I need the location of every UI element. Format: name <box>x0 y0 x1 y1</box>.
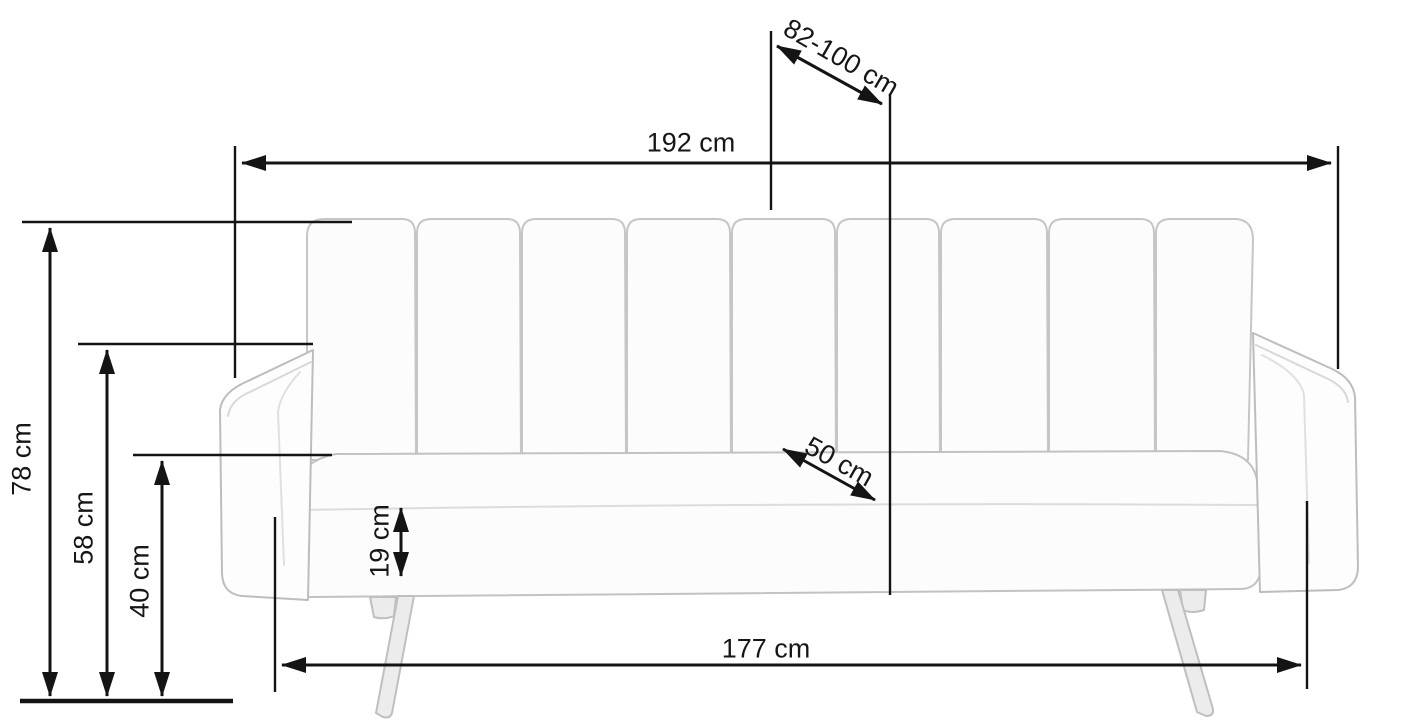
back-panel <box>627 219 731 460</box>
sofa-dimension-diagram: 192 cm 82-100 cm 78 cm 58 cm 40 cm 19 cm… <box>0 0 1408 723</box>
arm-height-label: 58 cm <box>71 491 98 565</box>
left-leg-bracket <box>370 597 396 618</box>
diagram-canvas <box>0 0 1408 723</box>
back-panel <box>1049 219 1155 460</box>
sofa-left-arm <box>220 350 313 600</box>
base-width-label: 177 cm <box>722 636 811 663</box>
back-panel <box>307 219 416 460</box>
sofa-backrest <box>307 219 1253 460</box>
back-panel <box>522 219 626 460</box>
overall-height-label: 78 cm <box>9 422 36 496</box>
back-panel <box>941 219 1048 460</box>
overall-width-label: 192 cm <box>647 130 736 157</box>
seat-slab <box>294 451 1261 597</box>
back-panel <box>837 219 940 460</box>
sofa-seat-base <box>294 451 1261 597</box>
back-panel <box>417 219 521 460</box>
seat-height-label: 40 cm <box>127 544 154 618</box>
left-arm-body <box>220 350 313 600</box>
back-panel <box>1156 219 1253 460</box>
back-panel <box>732 219 836 460</box>
sofa-right-arm <box>1253 333 1358 592</box>
cushion-thickness-label: 19 cm <box>367 504 394 578</box>
